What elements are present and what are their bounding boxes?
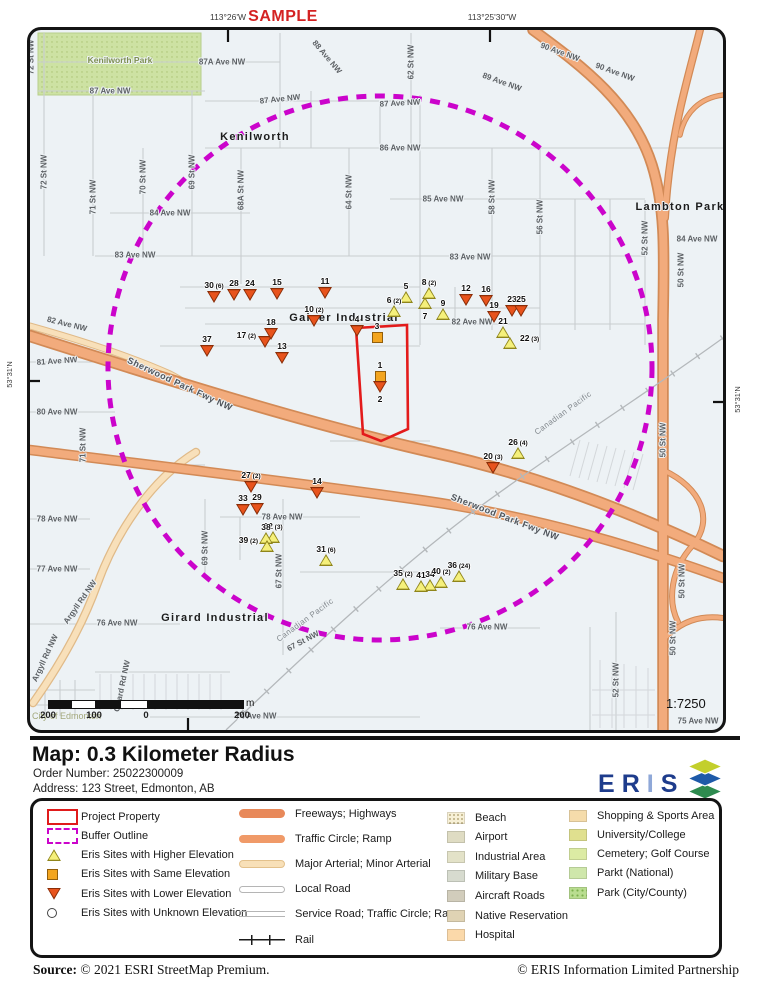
site-marker-number: 17 (2) (237, 330, 256, 340)
area-swatch (447, 812, 465, 824)
ramp-road-swatch (239, 835, 285, 843)
legend-item: Military Base (447, 869, 538, 884)
longitude-label-right: 113°25'30"W (468, 12, 517, 22)
legend-item: Aircraft Roads (447, 888, 545, 903)
legend-item: Service Road; Traffic Circle; Ramp (239, 907, 464, 922)
scale-bar-numbers: 200 100 0 200 (48, 710, 268, 722)
legend-item: Major Arterial; Minor Arterial (239, 856, 431, 871)
sample-watermark: SAMPLE (248, 8, 318, 26)
site-marker-number: 1 (378, 360, 383, 370)
map-report-page: 113°26'W SAMPLE 113°25'30"W 53°31'N 53°3… (0, 0, 768, 994)
unknown-elevation-icon (47, 908, 57, 918)
lower-elevation-icon (459, 294, 473, 306)
site-marker-number: 8 (2) (422, 277, 436, 287)
site-marker-number: 19 (489, 300, 498, 310)
site-marker-number: 15 (272, 277, 281, 287)
lower-elevation-icon (47, 888, 61, 900)
legend-item-label: Parkt (National) (597, 867, 673, 879)
area-swatch (447, 929, 465, 941)
legend-item-label: Eris Sites with Lower Elevation (81, 888, 231, 900)
legend-item-label: Traffic Circle; Ramp (295, 833, 392, 845)
lower-elevation-icon (200, 345, 214, 357)
area-swatch (447, 890, 465, 902)
legend-item-label: Native Reservation (475, 910, 568, 922)
area-swatch (447, 870, 465, 882)
legend-item-label: Service Road; Traffic Circle; Ramp (295, 908, 464, 920)
legend-item-label: Eris Sites with Higher Elevation (81, 849, 234, 861)
legend-item: Native Reservation (447, 908, 568, 923)
eris-logo-text: ERIS (598, 770, 684, 799)
lower-elevation-icon (373, 381, 387, 393)
higher-elevation-icon (387, 305, 401, 317)
area-swatch (447, 831, 465, 843)
site-marker-number: 3 (375, 321, 380, 331)
higher-elevation-icon (319, 554, 333, 566)
legend-item: Industrial Area (447, 849, 545, 864)
legend-item: Project Property (47, 809, 160, 824)
address: Address: 123 Street, Edmonton, AB (33, 783, 215, 795)
legend-item-label: Project Property (81, 811, 160, 823)
site-marker-number: 39 (2) (239, 535, 258, 545)
freeway-road-swatch (239, 809, 285, 818)
higher-elevation-icon (414, 580, 428, 592)
legend-item-label: Cemetery; Golf Course (597, 848, 709, 860)
legend-item: Airport (447, 830, 507, 845)
site-marker-number: 41 (416, 570, 425, 580)
same-elevation-icon (372, 332, 383, 343)
lower-elevation-icon (270, 288, 284, 300)
site-marker-number: 38 (261, 522, 270, 532)
site-marker-number: 10 (2) (304, 304, 323, 314)
higher-elevation-icon (396, 578, 410, 590)
scale-ratio-label: 1:7250 (666, 696, 706, 711)
legend-item: Local Road (239, 882, 351, 897)
legend-item: Buffer Outline (47, 828, 148, 843)
higher-elevation-icon (422, 287, 436, 299)
site-marker-number: 33 (238, 493, 247, 503)
site-marker-number: 16 (481, 284, 490, 294)
lower-elevation-icon (486, 462, 500, 474)
rail-road-swatch (239, 935, 285, 945)
legend: Project PropertyBuffer OutlineEris Sites… (30, 798, 722, 958)
longitude-label-left: 113°26'W (210, 12, 246, 22)
project-property-swatch (47, 809, 78, 825)
area-swatch (447, 851, 465, 863)
legend-item-label: Eris Sites with Same Elevation (81, 868, 230, 880)
area-swatch (569, 848, 587, 860)
higher-elevation-icon (434, 576, 448, 588)
site-marker-number: 25 (516, 294, 525, 304)
legend-item: Traffic Circle; Ramp (239, 831, 392, 846)
buffer-outline-swatch (47, 828, 78, 844)
site-marker-number: 24 (245, 278, 254, 288)
higher-elevation-icon (452, 570, 466, 582)
higher-elevation-icon (436, 308, 450, 320)
legend-item-label: Freeways; Highways (295, 808, 396, 820)
legend-item-label: Military Base (475, 870, 538, 882)
legend-item-label: Aircraft Roads (475, 890, 545, 902)
lower-elevation-icon (250, 503, 264, 515)
scale-bar (48, 700, 244, 709)
legend-item-label: Eris Sites with Unknown Elevation (81, 907, 247, 919)
site-marker-number: 30 (6) (204, 280, 223, 290)
map-canvas: 72 St NWKenilworth Park87A Ave NW88 Ave … (30, 30, 723, 730)
site-marker-number: 28 (229, 278, 238, 288)
lower-elevation-icon (207, 291, 221, 303)
eris-logo: ERIS (598, 758, 728, 800)
service-road-swatch (239, 911, 285, 917)
legend-item-label: Major Arterial; Minor Arterial (295, 858, 431, 870)
legend-item-label: Airport (475, 831, 507, 843)
site-marker-number: 9 (441, 298, 446, 308)
legend-item-label: Local Road (295, 883, 351, 895)
site-marker-number: 2 (378, 394, 383, 404)
legend-item: Parkt (National) (569, 866, 673, 881)
higher-elevation-icon (503, 337, 517, 349)
legend-item-label: Rail (295, 934, 314, 946)
footer: Source: © 2021 ESRI StreetMap Premium. ©… (33, 962, 739, 978)
site-marker-number: 4 (355, 314, 360, 324)
legend-item: Eris Sites with Higher Elevation (47, 848, 234, 863)
site-marker-number: 21 (498, 316, 507, 326)
site-marker-number: 22 (3) (520, 333, 539, 343)
legend-item-label: Buffer Outline (81, 830, 148, 842)
latitude-label-left: 53°31'N (5, 361, 14, 388)
lower-elevation-icon (236, 504, 250, 516)
site-marker-number: 18 (266, 317, 275, 327)
site-marker-number: 26 (4) (508, 437, 527, 447)
lower-elevation-icon (350, 325, 364, 337)
lower-elevation-icon (227, 289, 241, 301)
site-marker-number: 35 (2) (393, 568, 412, 578)
lower-elevation-icon (318, 287, 332, 299)
divider-rule (30, 736, 740, 740)
higher-elevation-icon (47, 849, 61, 861)
higher-elevation-icon (511, 447, 525, 459)
lower-elevation-icon (243, 289, 257, 301)
site-marker-number: 14 (312, 476, 321, 486)
higher-elevation-icon (496, 326, 510, 338)
area-swatch (569, 867, 587, 879)
site-marker-number: 37 (202, 334, 211, 344)
legend-item: Park (City/County) (569, 885, 687, 900)
legend-item-label: Beach (475, 812, 506, 824)
legend-item-label: Hospital (475, 929, 515, 941)
legend-item: University/College (569, 827, 686, 842)
site-marker-number: 7 (423, 311, 428, 321)
legend-item: Eris Sites with Same Elevation (47, 867, 230, 882)
lower-elevation-icon (307, 315, 321, 327)
site-marker-number: 31 (6) (316, 544, 335, 554)
legend-item: Eris Sites with Unknown Elevation (47, 906, 247, 921)
site-marker-number: 36 (24) (448, 560, 471, 570)
legend-item-label: University/College (597, 829, 686, 841)
copyright-line: © ERIS Information Limited Partnership (517, 962, 739, 978)
eris-logo-icon (686, 758, 724, 800)
area-swatch (569, 810, 587, 822)
lower-elevation-icon (310, 487, 324, 499)
lower-elevation-icon (514, 305, 528, 317)
site-marker-number: 40 (2) (431, 566, 450, 576)
legend-item: Eris Sites with Lower Elevation (47, 886, 231, 901)
map-site-markers: 123456 (2)78 (2)910 (2)11121314151617 (2… (30, 30, 723, 730)
site-marker-number: 12 (461, 283, 470, 293)
legend-item: Freeways; Highways (239, 806, 396, 821)
same-elevation-icon (47, 869, 58, 880)
latitude-label-right: 53°31'N (733, 386, 742, 413)
source-line: Source: © 2021 ESRI StreetMap Premium. (33, 962, 270, 978)
area-swatch (569, 829, 587, 841)
legend-item: Hospital (447, 928, 515, 943)
site-marker-number: 5 (404, 281, 409, 291)
site-marker-number: 29 (252, 492, 261, 502)
arterial-road-swatch (239, 860, 285, 868)
same-elevation-icon (375, 371, 386, 382)
lower-elevation-icon (275, 352, 289, 364)
legend-item-label: Shopping & Sports Area (597, 810, 714, 822)
legend-item: Rail (239, 932, 314, 947)
site-marker-number: 27 (2) (241, 470, 260, 480)
site-marker-number: 6 (2) (387, 295, 401, 305)
page-title: Map: 0.3 Kilometer Radius (32, 743, 295, 767)
legend-item-label: Industrial Area (475, 851, 545, 863)
legend-item: Cemetery; Golf Course (569, 847, 709, 862)
site-marker-number: 11 (321, 276, 330, 286)
area-swatch (447, 910, 465, 922)
site-marker-number: 13 (277, 341, 286, 351)
scale-unit-label: m (246, 698, 254, 709)
local-road-swatch (239, 886, 285, 893)
legend-item: Beach (447, 810, 506, 825)
order-number: Order Number: 25022300009 (33, 768, 183, 780)
site-marker-number: 20 (3) (483, 451, 502, 461)
area-swatch (569, 887, 587, 899)
legend-item-label: Park (City/County) (597, 887, 687, 899)
legend-item: Shopping & Sports Area (569, 808, 714, 823)
